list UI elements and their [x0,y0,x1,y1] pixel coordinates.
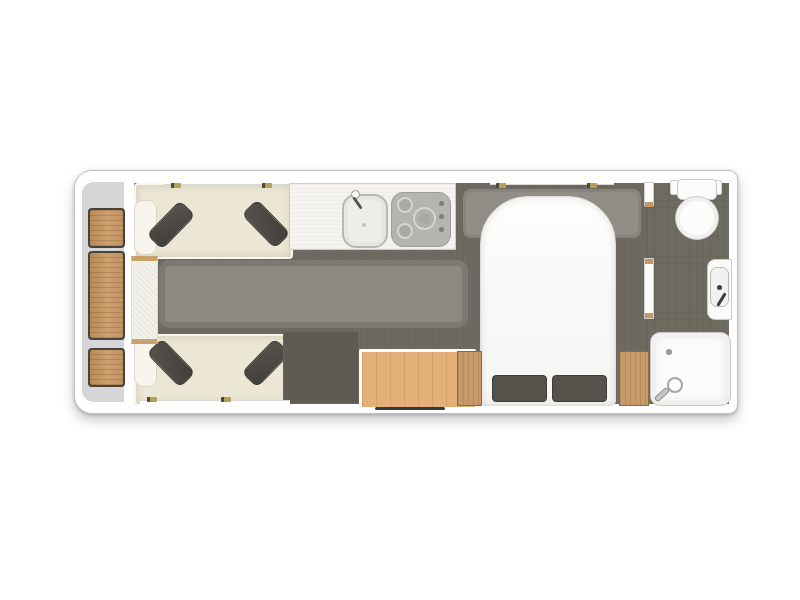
window-hinge-icon [171,183,181,188]
window [140,400,290,410]
hob-burner-icon [413,207,436,230]
hob-knob-icon [439,214,444,219]
bedside-cabinet [457,351,482,406]
shower-mixer-icon [667,377,683,393]
window-hinge-icon [262,183,272,188]
bedside-cabinet [619,351,649,406]
pillow [552,375,607,402]
front-locker [88,251,125,340]
window-hinge-icon [587,183,597,188]
floorplan-image [0,0,800,600]
wardrobe-unit [283,331,359,404]
lounge-carpet [159,260,468,328]
window-hinge-icon [147,397,157,402]
entrance-door-marker [375,407,445,410]
toilet-bowl [675,196,719,240]
washroom-partition-wall [645,259,653,318]
kitchen-sink [342,194,388,248]
front-locker [88,348,125,387]
hob-knob-icon [439,227,444,232]
hob-burner-icon [397,197,413,213]
wall-end-cap [645,259,653,264]
lounge-table [131,256,158,344]
window-hinge-icon [496,183,506,188]
caravan-shell [74,170,738,414]
window-hinge-icon [221,397,231,402]
front-locker [88,208,125,248]
pillow [492,375,547,402]
wall-end-cap [645,202,653,207]
wall-end-cap [645,313,653,318]
sink-drain-icon [362,223,366,227]
hob-knob-icon [439,201,444,206]
shower-drain-icon [666,349,672,355]
hob-burner-icon [397,223,413,239]
basin-drain-icon [717,285,722,290]
